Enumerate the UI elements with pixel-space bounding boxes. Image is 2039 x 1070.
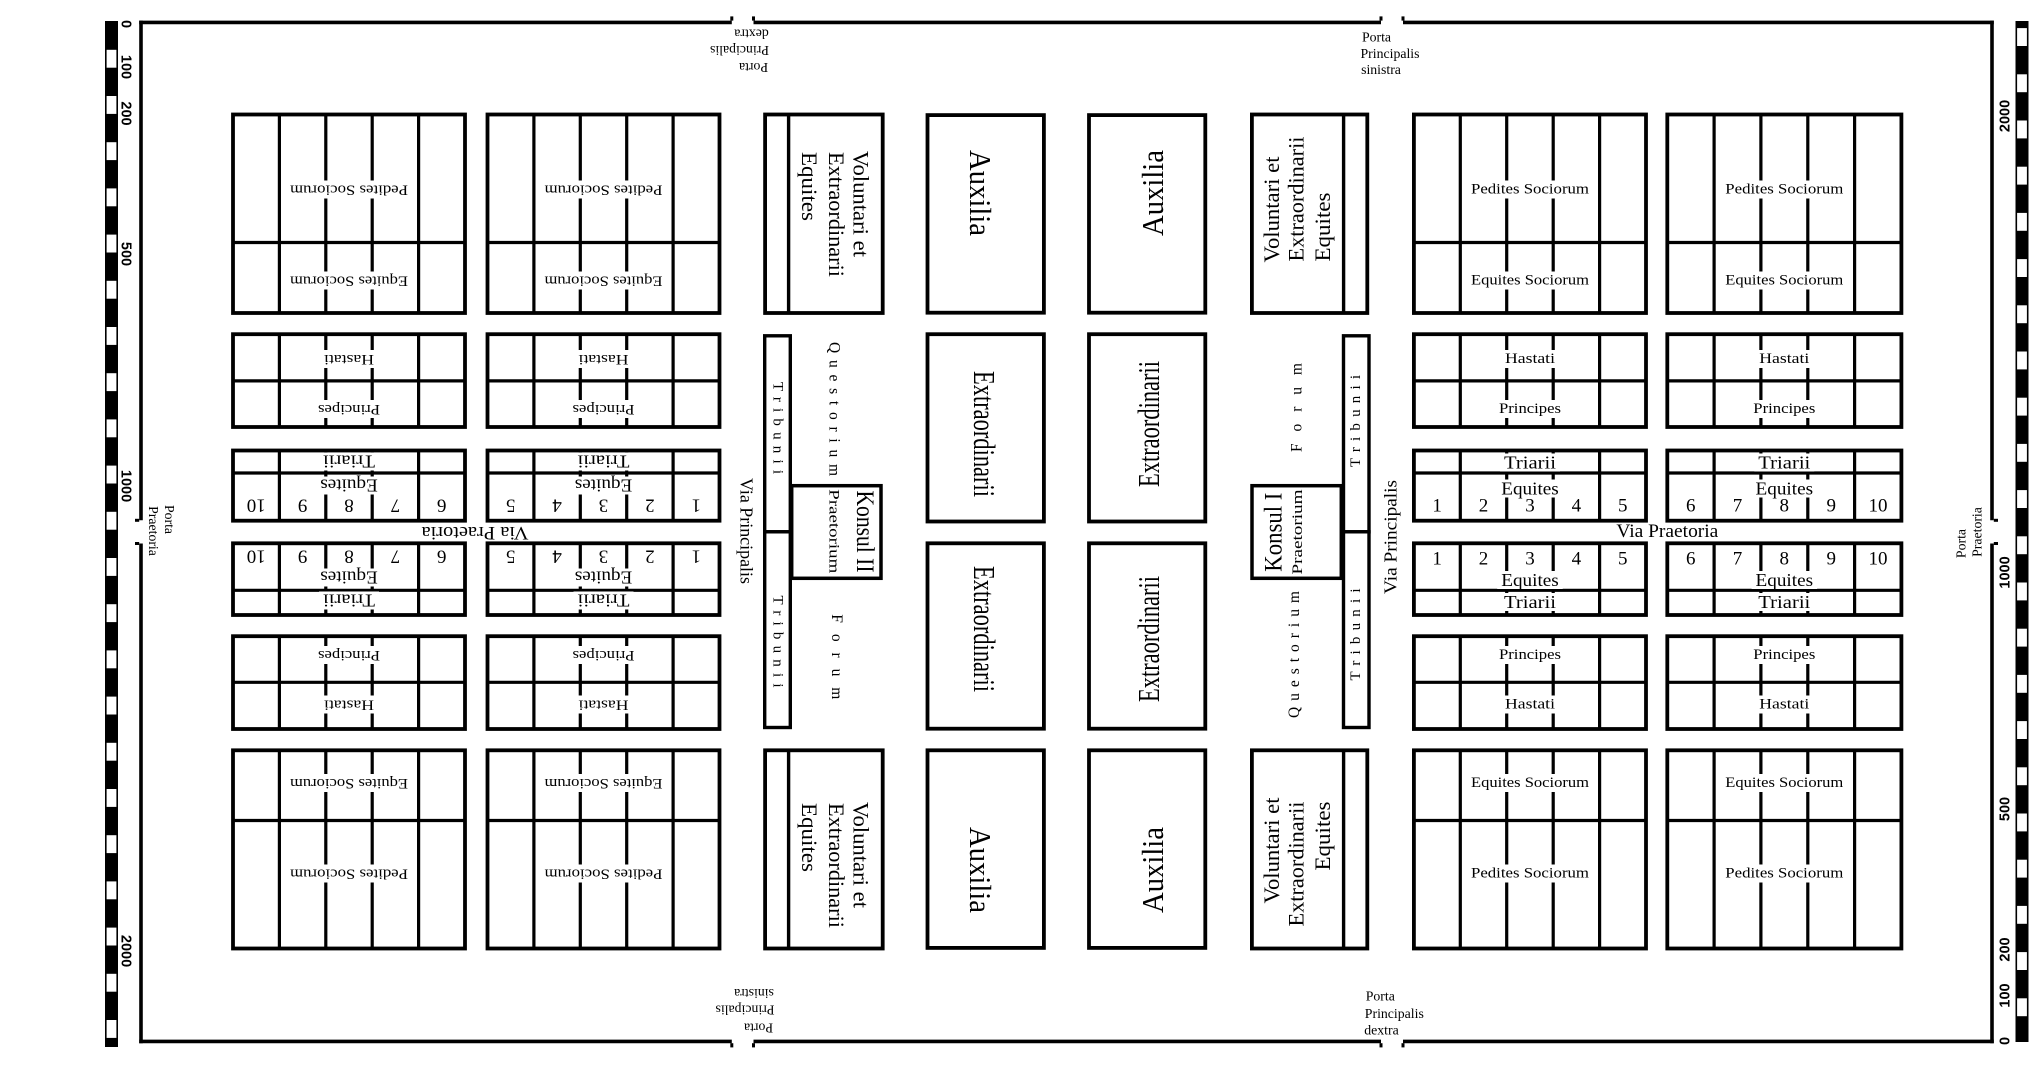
svg-text:Via Praetoria: Via Praetoria <box>1616 521 1719 542</box>
svg-text:Principalis: Principalis <box>710 43 769 58</box>
svg-text:Voluntari et: Voluntari et <box>849 151 874 257</box>
svg-text:Konsul I: Konsul I <box>1260 493 1287 572</box>
svg-text:9: 9 <box>1826 496 1836 517</box>
svg-text:Hastati: Hastati <box>1505 697 1555 713</box>
svg-text:Principes: Principes <box>1499 647 1561 663</box>
svg-text:Hastati: Hastati <box>324 697 374 713</box>
svg-text:2: 2 <box>645 495 655 516</box>
svg-text:Hastati: Hastati <box>1505 351 1555 367</box>
svg-text:Triarii: Triarii <box>577 591 629 611</box>
svg-text:Auxilia: Auxilia <box>1135 150 1170 236</box>
svg-text:0: 0 <box>118 20 134 28</box>
svg-text:4: 4 <box>1572 549 1582 570</box>
svg-text:5: 5 <box>1618 549 1628 570</box>
svg-text:Equites Sociorum: Equites Sociorum <box>1471 273 1589 289</box>
svg-text:Extraordinarii: Extraordinarii <box>1131 576 1166 702</box>
svg-text:6: 6 <box>1686 549 1696 570</box>
svg-text:Via Principalis: Via Principalis <box>737 478 757 584</box>
svg-text:1000: 1000 <box>118 470 134 502</box>
svg-text:Pedites Sociorum: Pedites Sociorum <box>1471 182 1589 198</box>
svg-text:1: 1 <box>1432 549 1442 570</box>
svg-text:Porta: Porta <box>1366 989 1395 1004</box>
svg-text:Praetoria: Praetoria <box>146 506 161 556</box>
svg-text:4: 4 <box>552 546 562 567</box>
svg-text:Equites Sociorum: Equites Sociorum <box>544 775 662 791</box>
svg-text:7: 7 <box>1733 496 1743 517</box>
svg-text:Equites: Equites <box>1310 802 1335 871</box>
svg-text:Equites Sociorum: Equites Sociorum <box>544 273 662 289</box>
svg-text:dextra: dextra <box>1364 1023 1398 1038</box>
svg-text:Via Praetoria: Via Praetoria <box>421 522 529 543</box>
svg-text:Pedites Sociorum: Pedites Sociorum <box>1725 866 1843 882</box>
svg-text:7: 7 <box>391 546 401 567</box>
svg-text:Pedites Sociorum: Pedites Sociorum <box>290 182 408 198</box>
svg-text:Pedites Sociorum: Pedites Sociorum <box>544 866 662 882</box>
svg-text:Equites Sociorum: Equites Sociorum <box>1471 775 1589 791</box>
svg-text:5: 5 <box>506 546 516 567</box>
svg-text:1: 1 <box>692 546 702 567</box>
svg-text:3: 3 <box>599 495 609 516</box>
svg-text:Triarii: Triarii <box>323 591 375 611</box>
svg-text:0: 0 <box>1998 1037 2014 1045</box>
svg-text:sinistra: sinistra <box>1361 62 1401 77</box>
svg-text:sinistra: sinistra <box>734 986 774 1001</box>
svg-text:Porta: Porta <box>162 505 177 534</box>
svg-text:Auxilia: Auxilia <box>963 827 998 913</box>
svg-text:Porta: Porta <box>1954 529 1969 558</box>
svg-text:Voluntari et: Voluntari et <box>849 802 874 908</box>
svg-text:2000: 2000 <box>118 935 134 967</box>
svg-text:4: 4 <box>1572 496 1582 517</box>
svg-text:Hastati: Hastati <box>1759 697 1809 713</box>
svg-text:9: 9 <box>1826 549 1836 570</box>
svg-text:Via Principalis: Via Principalis <box>1381 480 1401 594</box>
svg-text:6: 6 <box>437 495 447 516</box>
svg-text:Triarii: Triarii <box>1504 592 1556 612</box>
svg-text:Equites Sociorum: Equites Sociorum <box>1725 273 1843 289</box>
svg-text:Hastati: Hastati <box>324 351 374 367</box>
svg-text:Hastati: Hastati <box>1759 351 1809 367</box>
svg-text:Triarii: Triarii <box>1758 453 1810 473</box>
svg-text:Praetorium: Praetorium <box>1290 489 1306 574</box>
svg-text:6: 6 <box>1686 496 1696 517</box>
svg-text:Hastati: Hastati <box>579 697 629 713</box>
svg-text:9: 9 <box>298 495 308 516</box>
svg-text:3: 3 <box>599 546 609 567</box>
svg-text:Equites: Equites <box>320 568 378 588</box>
svg-text:Equites: Equites <box>797 803 822 872</box>
svg-text:6: 6 <box>437 546 447 567</box>
svg-text:Equites: Equites <box>575 476 633 496</box>
svg-text:500: 500 <box>118 242 134 266</box>
svg-text:1000: 1000 <box>1998 556 2014 588</box>
svg-text:Equites: Equites <box>575 568 633 588</box>
svg-text:200: 200 <box>1998 937 2014 961</box>
svg-text:Extraordinarii: Extraordinarii <box>1284 802 1309 927</box>
svg-text:Principalis: Principalis <box>1360 46 1419 61</box>
svg-text:2000: 2000 <box>1998 100 2014 132</box>
svg-text:Auxilia: Auxilia <box>1135 827 1170 913</box>
svg-text:Pedites Sociorum: Pedites Sociorum <box>290 866 408 882</box>
svg-text:1: 1 <box>1432 496 1442 517</box>
svg-text:10: 10 <box>1869 549 1888 570</box>
svg-text:Equites: Equites <box>797 152 822 221</box>
svg-text:Pedites Sociorum: Pedites Sociorum <box>1471 866 1589 882</box>
svg-text:Voluntari et: Voluntari et <box>1259 798 1284 904</box>
svg-text:Principalis: Principalis <box>1365 1006 1424 1021</box>
svg-text:Principes: Principes <box>1753 401 1815 417</box>
svg-text:Principes: Principes <box>318 401 380 417</box>
svg-text:Principes: Principes <box>1753 647 1815 663</box>
svg-text:100: 100 <box>118 55 134 79</box>
svg-text:Equites Sociorum: Equites Sociorum <box>290 775 408 791</box>
svg-text:Pedites Sociorum: Pedites Sociorum <box>1725 182 1843 198</box>
svg-text:dextra: dextra <box>734 27 768 42</box>
svg-text:Voluntari et: Voluntari et <box>1259 157 1284 263</box>
svg-text:100: 100 <box>1998 983 2014 1007</box>
svg-text:500: 500 <box>1998 797 2014 821</box>
svg-text:Equites: Equites <box>320 476 378 496</box>
svg-text:Praetorium: Praetorium <box>825 489 841 573</box>
svg-text:Triarii: Triarii <box>323 452 375 472</box>
svg-text:Equites: Equites <box>1310 193 1335 262</box>
svg-text:2: 2 <box>1479 549 1489 570</box>
svg-text:4: 4 <box>552 495 562 516</box>
svg-text:Hastati: Hastati <box>579 351 629 367</box>
svg-text:Principes: Principes <box>572 401 634 417</box>
svg-text:8: 8 <box>1780 549 1790 570</box>
svg-text:10: 10 <box>247 495 266 516</box>
svg-text:Triarii: Triarii <box>577 452 629 472</box>
svg-text:Principes: Principes <box>572 647 634 663</box>
svg-text:Porta: Porta <box>1362 30 1391 45</box>
svg-text:Equites Sociorum: Equites Sociorum <box>290 273 408 289</box>
svg-text:5: 5 <box>506 495 516 516</box>
svg-text:Triarii: Triarii <box>1758 592 1810 612</box>
svg-text:Praetoria: Praetoria <box>1970 507 1985 557</box>
svg-text:Auxilia: Auxilia <box>963 150 998 236</box>
svg-text:Extraordinarii: Extraordinarii <box>967 371 1002 497</box>
svg-text:8: 8 <box>1780 496 1790 517</box>
svg-text:1: 1 <box>692 495 702 516</box>
svg-text:Triarii: Triarii <box>1504 453 1556 473</box>
svg-text:Equites: Equites <box>1501 570 1559 590</box>
svg-text:Equites: Equites <box>1756 570 1814 590</box>
svg-text:2: 2 <box>1479 496 1489 517</box>
svg-text:7: 7 <box>1733 549 1743 570</box>
svg-text:Porta: Porta <box>739 60 768 75</box>
svg-text:7: 7 <box>391 495 401 516</box>
svg-text:Porta: Porta <box>744 1021 773 1036</box>
svg-text:10: 10 <box>1869 496 1888 517</box>
svg-text:Extraordinarii: Extraordinarii <box>1284 137 1309 262</box>
svg-text:Principes: Principes <box>318 647 380 663</box>
svg-text:3: 3 <box>1525 549 1535 570</box>
svg-text:Extraordinarii: Extraordinarii <box>1131 361 1166 487</box>
svg-text:Principes: Principes <box>1499 401 1561 417</box>
svg-text:5: 5 <box>1618 496 1628 517</box>
svg-text:Extraordinarii: Extraordinarii <box>967 566 1002 692</box>
svg-text:3: 3 <box>1525 496 1535 517</box>
svg-text:Pedites Sociorum: Pedites Sociorum <box>544 182 662 198</box>
svg-text:8: 8 <box>344 495 354 516</box>
svg-text:200: 200 <box>118 101 134 125</box>
svg-text:Konsul II: Konsul II <box>851 491 878 573</box>
svg-text:9: 9 <box>298 546 308 567</box>
svg-text:8: 8 <box>344 546 354 567</box>
svg-text:10: 10 <box>247 546 266 567</box>
svg-text:2: 2 <box>645 546 655 567</box>
svg-text:Extraordinarii: Extraordinarii <box>824 803 849 928</box>
svg-text:Principalis: Principalis <box>715 1003 774 1018</box>
svg-text:Equites Sociorum: Equites Sociorum <box>1725 775 1843 791</box>
svg-text:Extraordinarii: Extraordinarii <box>824 152 849 277</box>
